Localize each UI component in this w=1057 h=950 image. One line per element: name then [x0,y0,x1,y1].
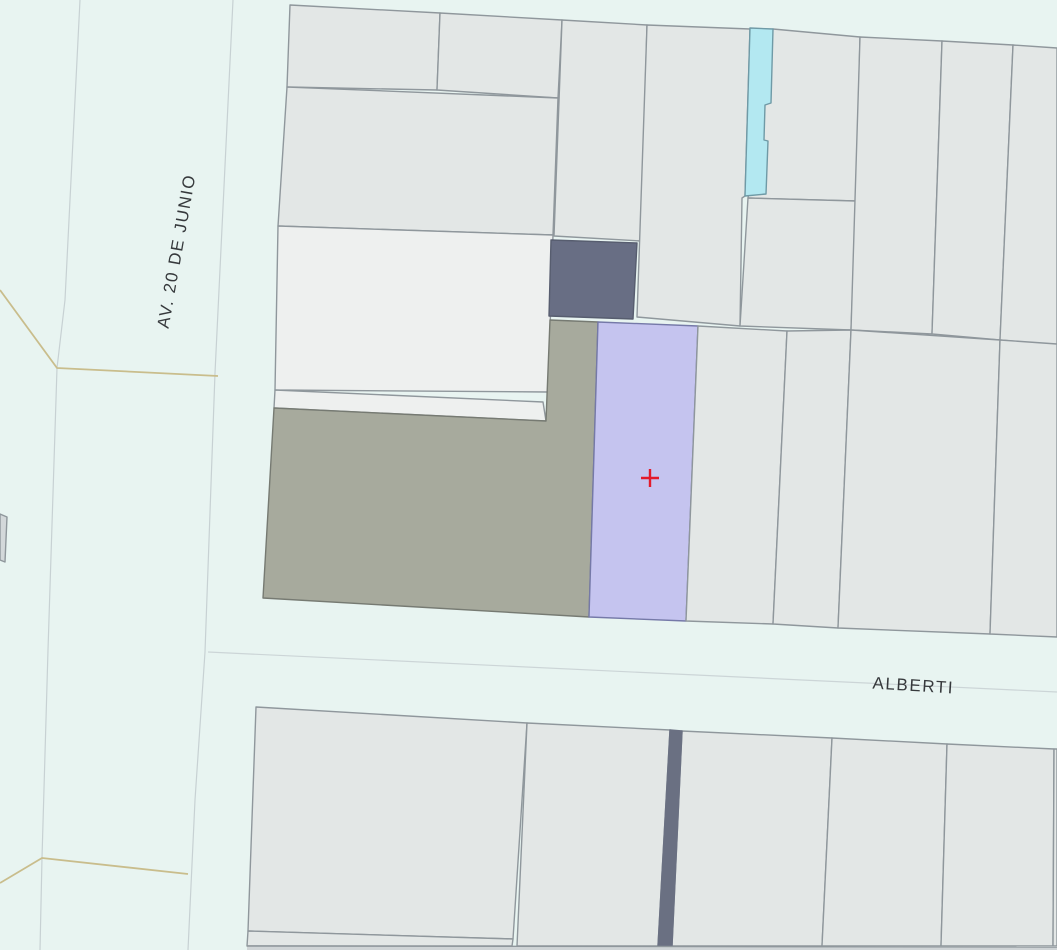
parcel[interactable] [740,198,856,330]
parcel[interactable] [686,326,787,624]
parcel[interactable] [941,744,1054,946]
parcel[interactable] [851,37,942,334]
parcel[interactable] [822,738,947,946]
parcel[interactable] [287,5,440,90]
parcel[interactable] [838,330,1000,634]
map-canvas[interactable]: AV. 20 DE JUNIO ALBERTI [0,0,1057,950]
edge-parcel-sliver[interactable] [0,514,7,562]
selected-parcel[interactable] [589,322,698,621]
parcel[interactable] [637,25,750,326]
parcel[interactable] [1053,749,1057,946]
parcel[interactable] [248,707,527,939]
parcel[interactable] [275,226,553,392]
map-viewport[interactable]: AV. 20 DE JUNIO ALBERTI [0,0,1057,950]
parcel[interactable] [278,87,558,235]
parcel[interactable] [990,340,1057,637]
parcel[interactable] [672,731,832,946]
parcel[interactable] [554,20,647,241]
parcel[interactable] [517,723,670,946]
parcel[interactable] [932,41,1013,340]
building-footprint-parcel[interactable] [549,240,637,319]
block-boundary-line [247,946,1057,947]
parcel[interactable] [437,13,562,98]
